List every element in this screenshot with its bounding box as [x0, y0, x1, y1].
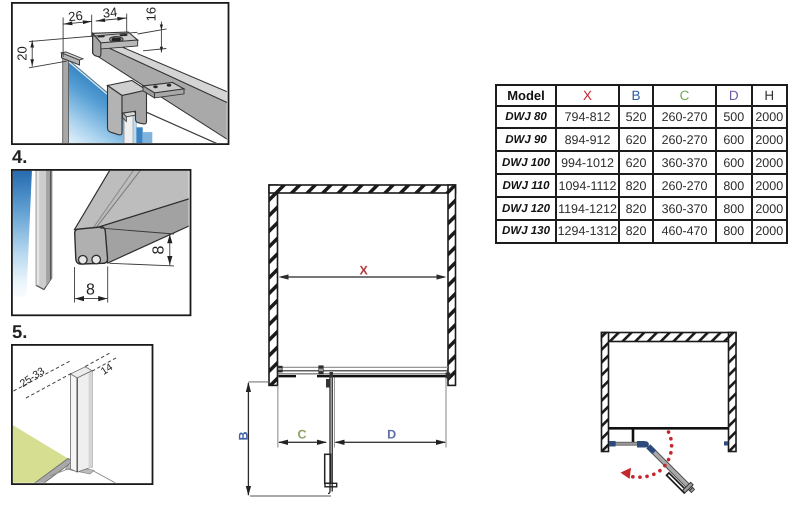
- svg-text:16: 16: [143, 7, 158, 21]
- svg-text:8: 8: [86, 282, 95, 299]
- svg-text:26: 26: [68, 8, 84, 24]
- svg-text:B: B: [237, 431, 251, 440]
- svg-text:20: 20: [15, 46, 30, 60]
- svg-text:14: 14: [99, 361, 115, 378]
- svg-text:34: 34: [102, 4, 118, 20]
- svg-text:X: X: [360, 264, 369, 278]
- svg-text:C: C: [297, 428, 306, 442]
- svg-text:D: D: [387, 428, 396, 442]
- svg-text:8: 8: [151, 245, 168, 254]
- svg-text:25-33: 25-33: [18, 365, 47, 390]
